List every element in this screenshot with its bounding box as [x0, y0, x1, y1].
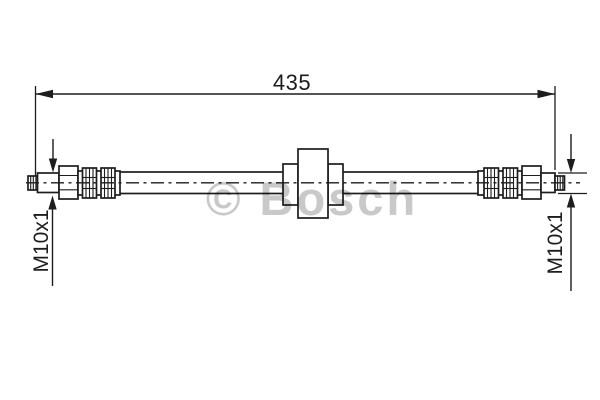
- left-thread-dimension: M10x1: [30, 139, 57, 286]
- grommet-center-block: [298, 149, 328, 218]
- right-thread-label: M10x1: [544, 211, 567, 274]
- grommet-left-shoulder: [283, 164, 298, 205]
- right-thread-dimension: M10x1: [544, 134, 587, 291]
- right-lower-arrowhead: [567, 194, 575, 208]
- center-grommet: [283, 149, 343, 218]
- left-dimension-arrow: [36, 90, 54, 98]
- brake-hose-technical-drawing: 435 M10x1 M10x1 © Bosch: [0, 0, 600, 400]
- diagram-canvas: 435 M10x1 M10x1: [0, 0, 600, 400]
- right-dimension-arrow: [538, 90, 556, 98]
- right-upper-arrowhead: [567, 159, 575, 173]
- left-lower-arrowhead: [48, 196, 56, 210]
- left-thread-label: M10x1: [30, 209, 53, 272]
- grommet-right-shoulder: [328, 164, 343, 205]
- length-value: 435: [273, 70, 311, 95]
- left-upper-arrowhead: [49, 159, 57, 173]
- length-dimension: 435: [36, 70, 556, 176]
